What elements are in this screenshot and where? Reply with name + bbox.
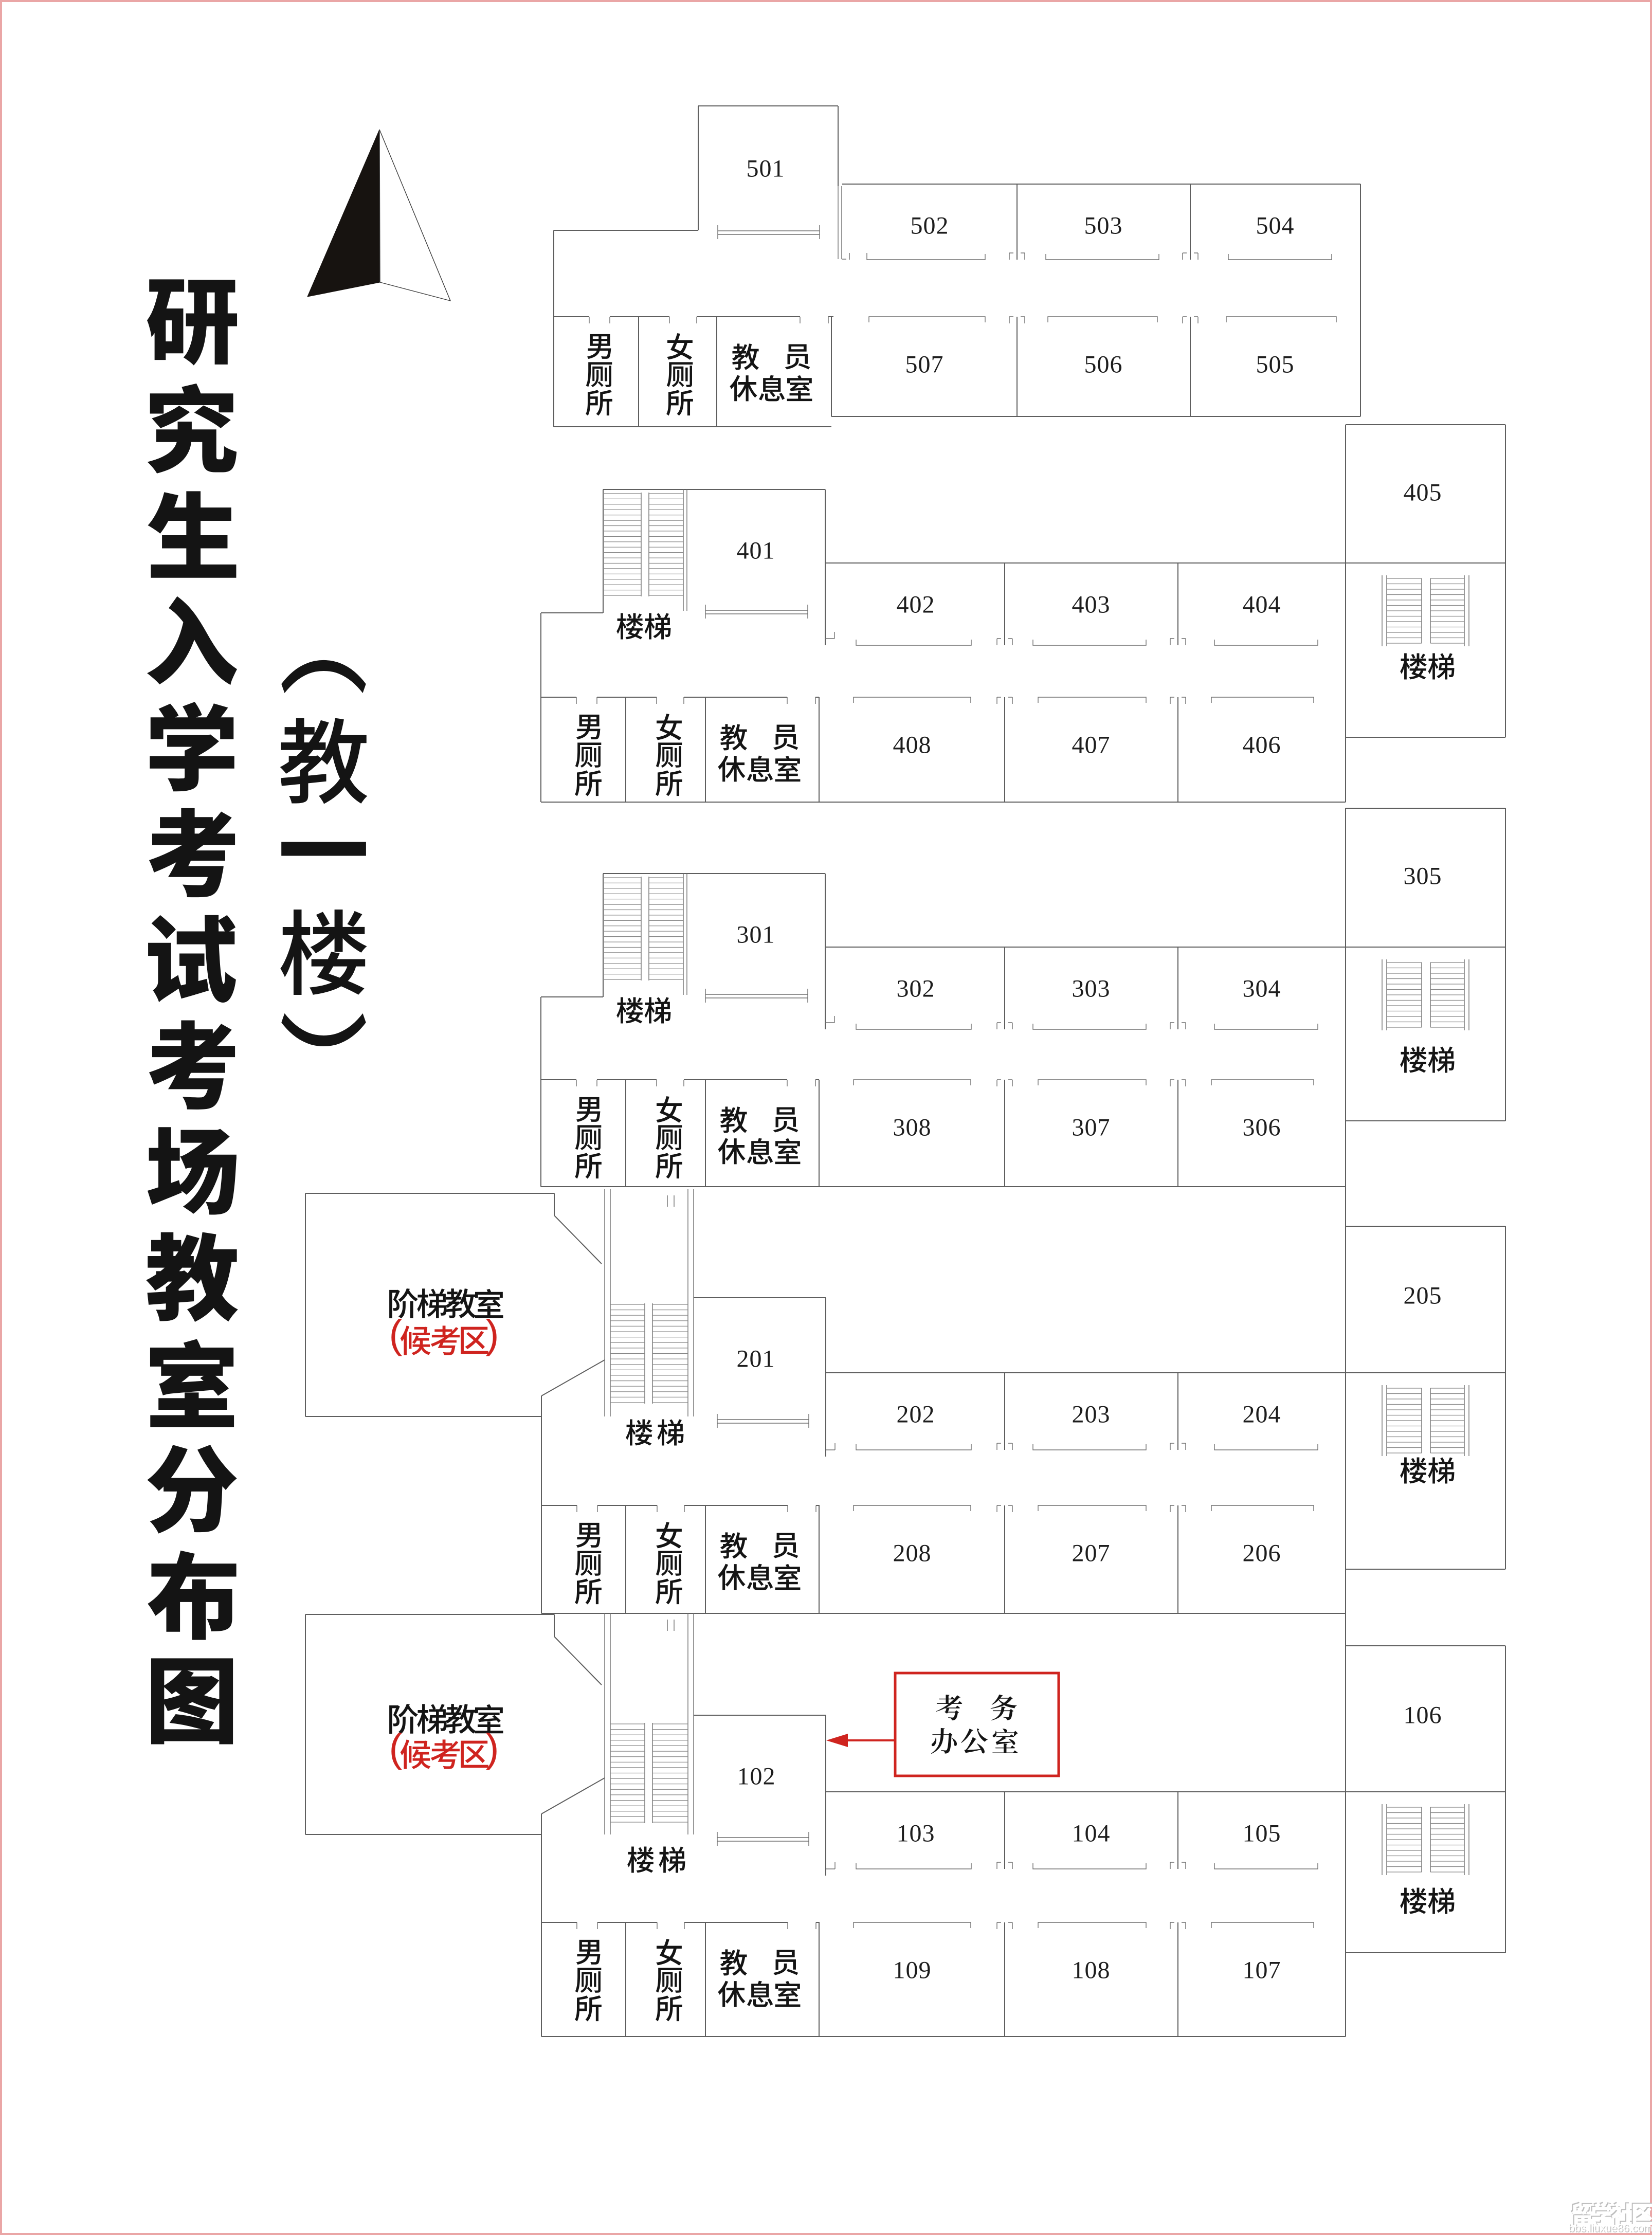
svg-text:102: 102 (737, 1763, 776, 1790)
svg-text:405: 405 (1404, 479, 1442, 506)
svg-text:(: ( (389, 1725, 403, 1771)
svg-text:302: 302 (897, 975, 935, 1003)
svg-text:): ) (486, 1725, 500, 1771)
svg-text:106: 106 (1404, 1702, 1442, 1729)
svg-text:505: 505 (1256, 351, 1295, 378)
svg-text:404: 404 (1243, 591, 1281, 619)
svg-text:107: 107 (1243, 1957, 1281, 1984)
svg-text:103: 103 (897, 1820, 935, 1847)
svg-text:203: 203 (1072, 1401, 1111, 1428)
svg-text:504: 504 (1256, 212, 1295, 240)
svg-text:407: 407 (1072, 732, 1111, 759)
svg-text:402: 402 (897, 591, 935, 619)
svg-text:206: 206 (1243, 1540, 1281, 1567)
svg-text:104: 104 (1072, 1820, 1111, 1847)
svg-text:306: 306 (1243, 1114, 1281, 1141)
svg-text:207: 207 (1072, 1540, 1111, 1567)
svg-text:507: 507 (905, 351, 944, 378)
svg-text:109: 109 (893, 1957, 932, 1984)
svg-text:208: 208 (893, 1540, 932, 1567)
svg-text:205: 205 (1404, 1282, 1442, 1310)
svg-text:201: 201 (737, 1346, 775, 1373)
svg-text:403: 403 (1072, 591, 1111, 619)
svg-text:301: 301 (737, 921, 775, 949)
svg-text:406: 406 (1243, 732, 1281, 759)
svg-text:501: 501 (747, 155, 785, 183)
svg-text:105: 105 (1243, 1820, 1281, 1847)
svg-text:401: 401 (737, 537, 775, 565)
svg-text:202: 202 (897, 1401, 935, 1428)
svg-text:(: ( (389, 1312, 403, 1357)
svg-text:408: 408 (893, 732, 932, 759)
svg-text:bbs.liuxue86.com: bbs.liuxue86.com (1568, 2222, 1652, 2234)
svg-text:503: 503 (1084, 212, 1123, 240)
svg-text:108: 108 (1072, 1957, 1111, 1984)
svg-text:305: 305 (1404, 863, 1442, 890)
svg-text:304: 304 (1243, 975, 1281, 1003)
svg-text:307: 307 (1072, 1114, 1111, 1141)
svg-text:303: 303 (1072, 975, 1111, 1003)
svg-text:308: 308 (893, 1114, 932, 1141)
svg-text:506: 506 (1084, 351, 1123, 378)
svg-text:204: 204 (1243, 1401, 1281, 1428)
svg-text:502: 502 (911, 212, 949, 240)
svg-text:): ) (486, 1312, 500, 1357)
